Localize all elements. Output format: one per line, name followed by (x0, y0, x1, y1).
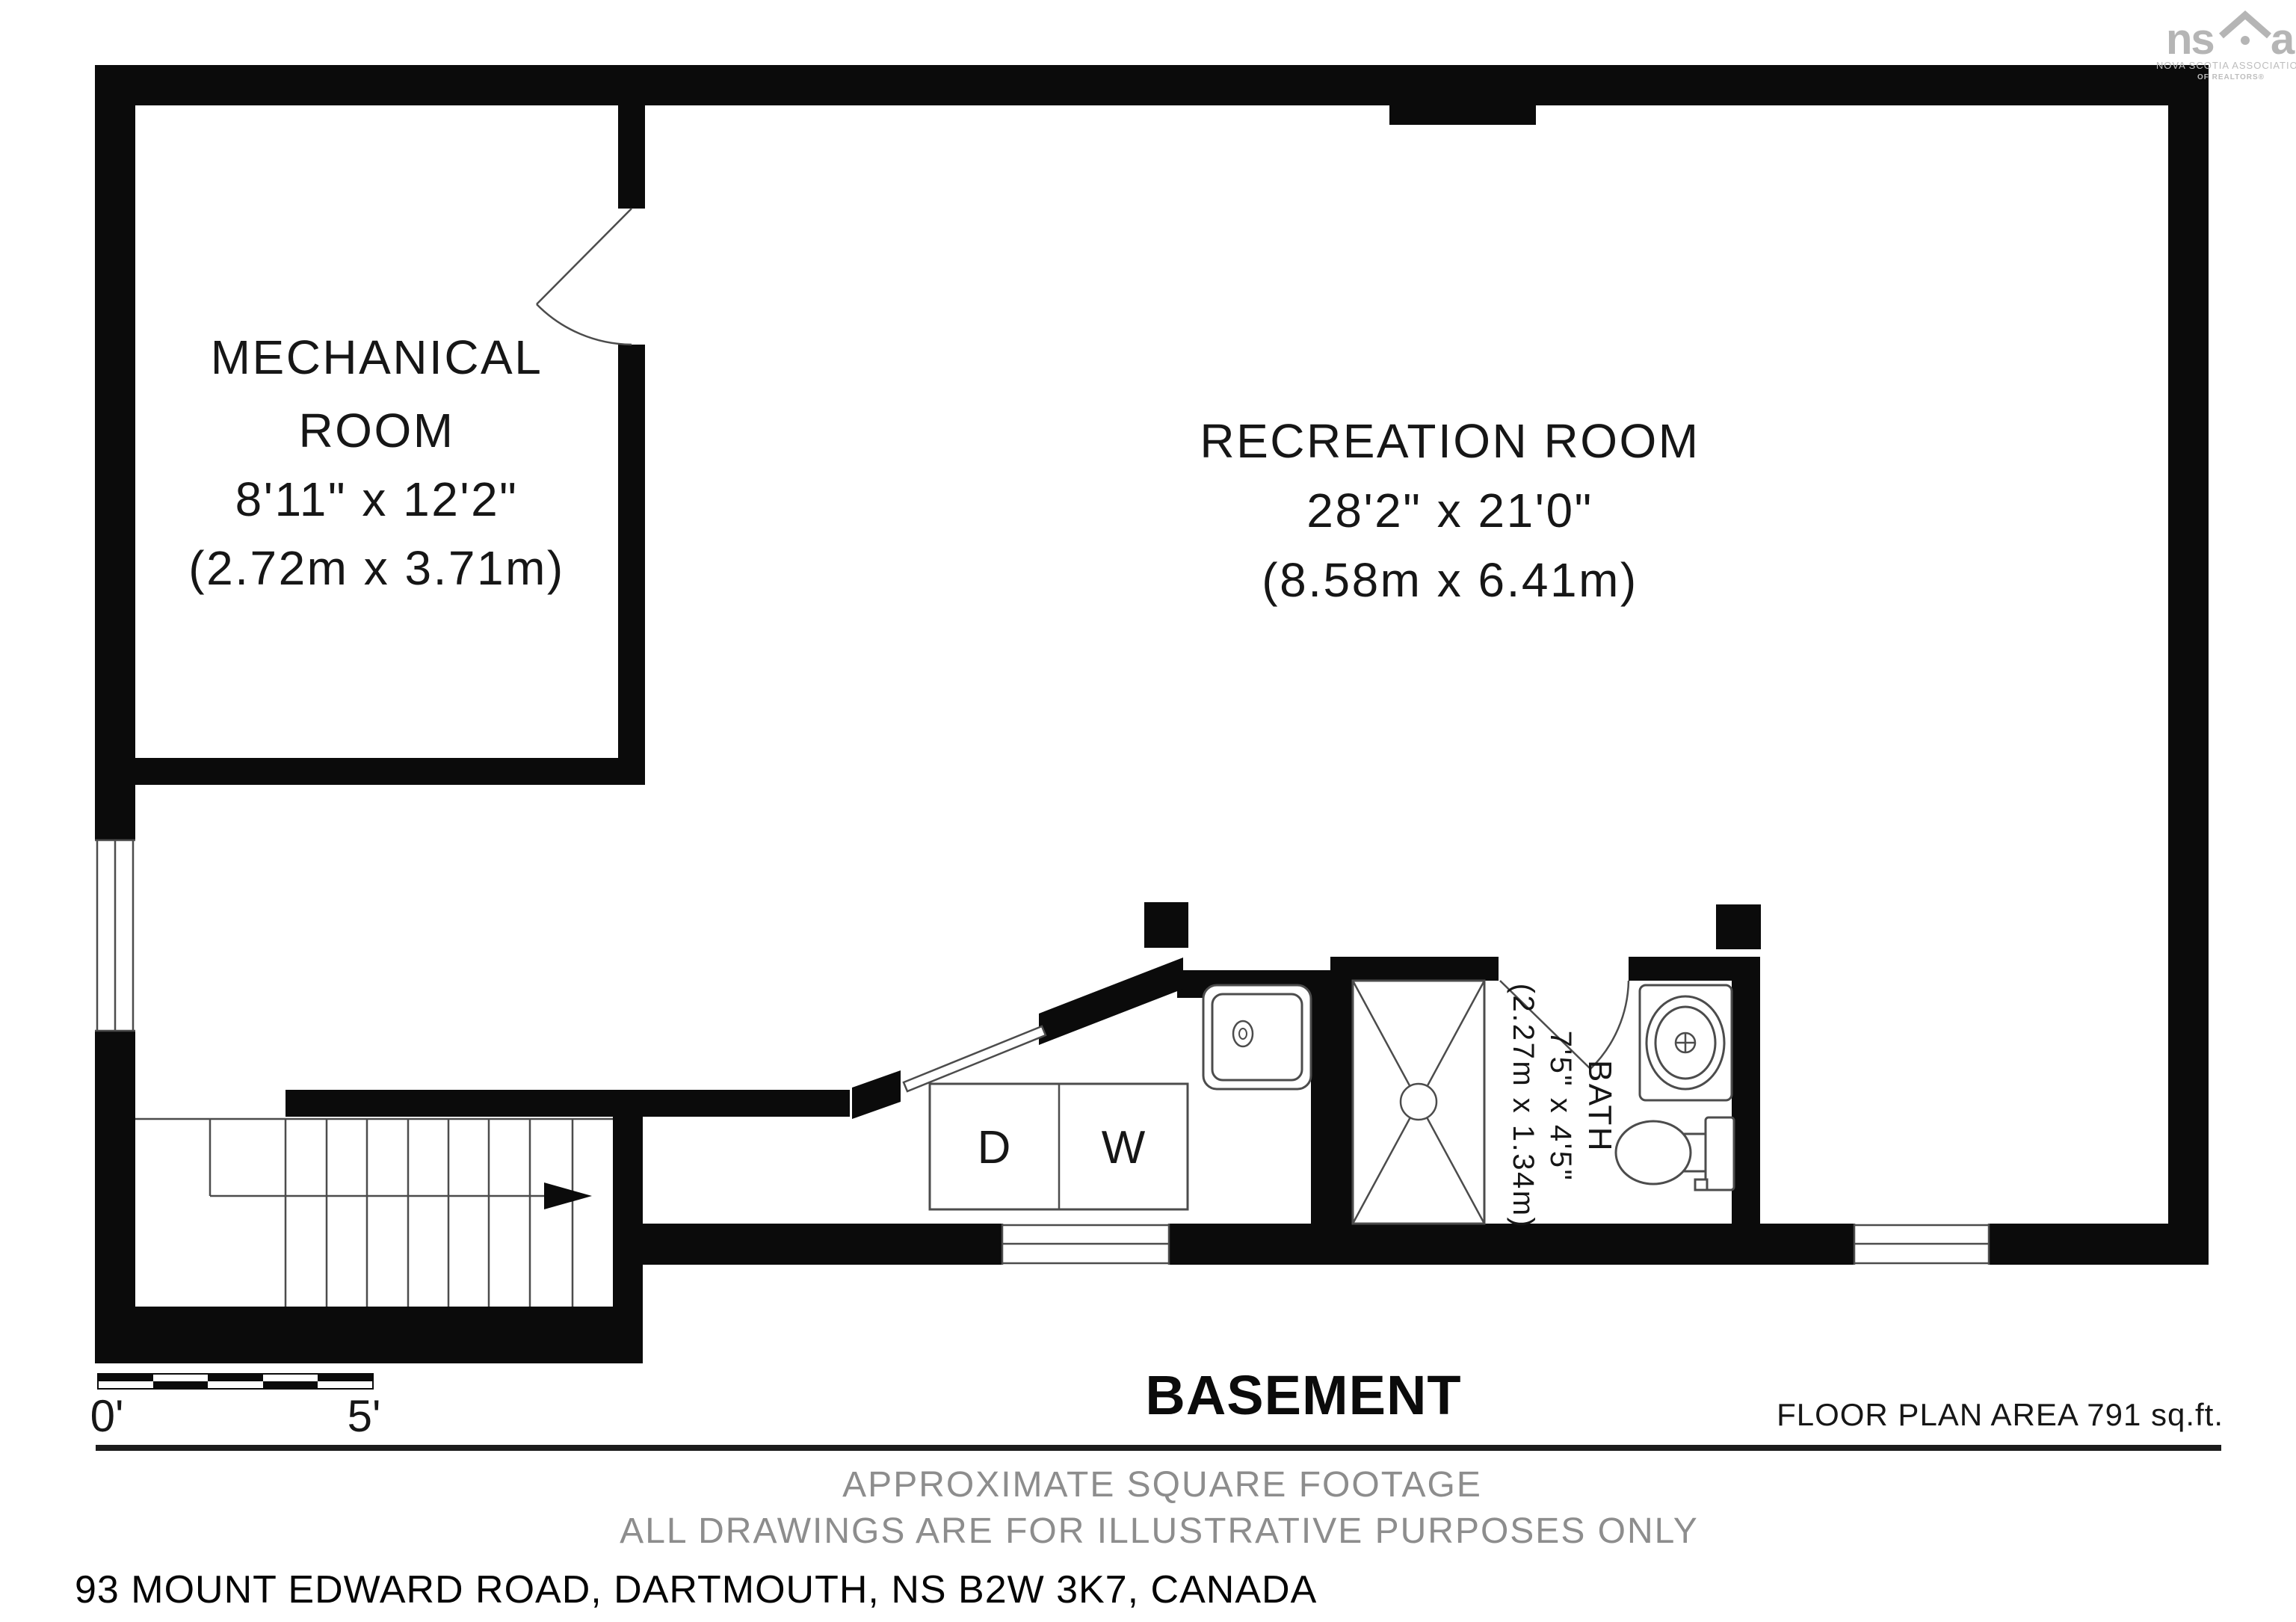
mechanical-room-dims-imperial: 8'11" x 12'2" (235, 472, 519, 526)
divider-line (96, 1445, 2221, 1451)
mechanical-room-label: MECHANICAL ROOM 8'11" x 12'2" (2.72m x 3… (188, 330, 564, 595)
wall-stair-bottom (95, 1307, 643, 1363)
toilet (1616, 1117, 1734, 1190)
post-left (1144, 902, 1188, 948)
door-mechanical-room (537, 209, 632, 345)
bath-dims-metric: (2.27m x 1.34m) (1507, 984, 1540, 1230)
wall-diagonal-seg1 (852, 1070, 901, 1119)
property-address: 93 MOUNT EDWARD ROAD, DARTMOUTH, NS B2W … (75, 1568, 1317, 1612)
door-swing-arc-mech (537, 304, 632, 345)
wall-bath-top-right (1629, 957, 1760, 981)
wall-stair-right (613, 1117, 643, 1307)
wall-left-upper (95, 65, 135, 839)
nsar-logo-text-right: ar (2271, 15, 2296, 64)
stair-direction-arrow-icon (544, 1182, 592, 1209)
shower (1353, 981, 1484, 1224)
window-bottom-left (1002, 1224, 1170, 1265)
recreation-room-dims-metric: (8.58m x 6.41m) (1262, 553, 1638, 607)
nsar-house-icon (2221, 15, 2269, 45)
dryer-label: D (978, 1122, 1011, 1174)
bath-dims-imperial: 7'5" x 4'5" (1544, 1031, 1577, 1182)
scale-end-label: 5' (348, 1391, 381, 1441)
wall-stair-top (286, 1090, 850, 1117)
wall-diagonal-seg2 (1039, 958, 1183, 1045)
wall-bottom-seg2 (1170, 1224, 1854, 1265)
bath-label: BATH 7'5" x 4'5" (2.27m x 1.34m) (1507, 984, 1618, 1230)
bath-name: BATH (1581, 1060, 1618, 1153)
wall-bottom-seg1 (628, 1224, 1002, 1265)
wall-mech-right-lower (618, 345, 645, 785)
nsar-tagline-line1: NOVA SCOTIA ASSOCIATION (2156, 60, 2296, 71)
staircase (135, 1119, 613, 1307)
washer-label: W (1102, 1122, 1146, 1174)
wall-right (2168, 65, 2209, 1265)
footer-note-line1: APPROXIMATE SQUARE FOOTAGE (842, 1465, 1482, 1505)
scale-bar: 0' 5' (90, 1374, 381, 1441)
laundry-sink (1203, 985, 1311, 1089)
mechanical-room-dims-metric: (2.72m x 3.71m) (188, 541, 564, 595)
door-leaf-laundry-diagonal (904, 1026, 1046, 1091)
wall-bath-right (1732, 981, 1760, 1224)
bath-sink-faucet-icon (1676, 1033, 1695, 1052)
wall-top (95, 65, 2209, 105)
floor-plan-canvas: D W MECHANICAL ROOM 8'11" x 12'2" (2.72m… (0, 0, 2296, 1622)
post-right (1716, 904, 1761, 949)
wall-mech-bottom (135, 758, 645, 785)
nsar-logo-text-left: ns (2166, 15, 2214, 64)
washer-dryer-unit: D W (930, 1084, 1188, 1209)
bath-sink (1640, 985, 1732, 1100)
toilet-tank (1706, 1117, 1734, 1190)
door-swing-arc-bath (1590, 981, 1629, 1069)
mechanical-room-name-line2: ROOM (298, 404, 454, 457)
footer-note-line2: ALL DRAWINGS ARE FOR ILLUSTRATIVE PURPOS… (620, 1511, 1699, 1551)
wall-bath-top-left (1330, 957, 1499, 981)
toilet-flush-handle (1695, 1180, 1707, 1190)
mechanical-room-name-line1: MECHANICAL (211, 330, 543, 384)
wall-mech-right-stub (618, 105, 645, 209)
floor-plan-page: D W MECHANICAL ROOM 8'11" x 12'2" (2.72m… (0, 0, 2296, 1622)
footer-notes: APPROXIMATE SQUARE FOOTAGE ALL DRAWINGS … (75, 1465, 1699, 1612)
recreation-room-name: RECREATION ROOM (1200, 414, 1700, 468)
window-left-wall (95, 839, 135, 1032)
recreation-room-dims-imperial: 28'2" x 21'0" (1306, 484, 1593, 537)
stair-treads (286, 1119, 573, 1307)
title-row: BASEMENT FLOOR PLAN AREA 791 sq.ft. (96, 1364, 2224, 1451)
window-bottom-right (1854, 1224, 1990, 1265)
scale-start-label: 0' (90, 1391, 124, 1441)
floor-plan-area-note: FLOOR PLAN AREA 791 sq.ft. (1777, 1397, 2224, 1432)
nsar-tagline-line2: OF REALTORS® (2197, 73, 2265, 81)
recreation-room-label: RECREATION ROOM 28'2" x 21'0" (8.58m x 6… (1200, 414, 1700, 607)
wall-bottom-seg3 (1990, 1224, 2209, 1265)
wall-laundry-divider (1311, 981, 1353, 1224)
wall-top-ledge (1389, 105, 1536, 125)
page-title: BASEMENT (1145, 1364, 1461, 1426)
shower-drain-icon (1401, 1084, 1436, 1120)
